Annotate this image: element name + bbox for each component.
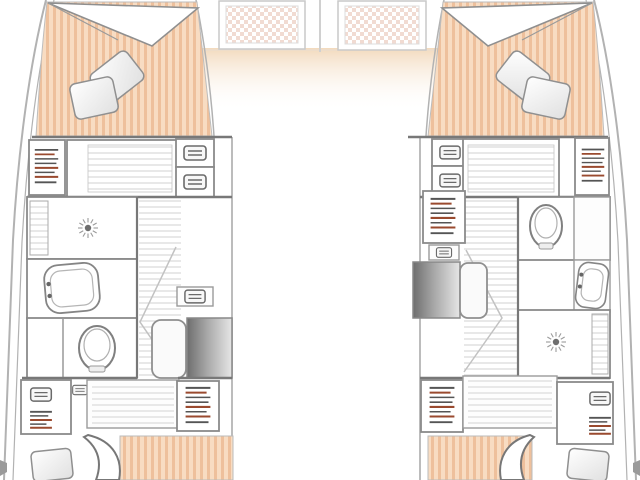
floor-plan-svg xyxy=(0,0,640,480)
drawer-glyph xyxy=(590,392,610,405)
drawer-glyph xyxy=(440,174,460,187)
stbd-companionway xyxy=(413,191,518,377)
stbd-steps xyxy=(413,262,460,318)
shower-shelf xyxy=(30,201,48,255)
port-aft-lockers xyxy=(21,380,219,434)
port-aft-bolster xyxy=(84,435,120,480)
forward-hatch-starboard xyxy=(338,1,426,50)
port-seat xyxy=(152,320,186,378)
stbd-aft-pillow xyxy=(567,448,610,480)
port-hull xyxy=(0,0,233,480)
drawer-glyph xyxy=(73,385,88,394)
slat-lines xyxy=(468,145,554,192)
port-bathroom xyxy=(27,197,137,378)
drawer-glyph xyxy=(436,248,451,258)
drawer-glyph xyxy=(31,388,52,401)
drawer-glyph xyxy=(184,175,206,189)
stbd-seat xyxy=(460,263,487,318)
slat-lines xyxy=(92,384,174,424)
stbd-toilet xyxy=(530,205,562,249)
starboard-hull xyxy=(408,0,640,480)
port-aft-berth xyxy=(120,436,233,480)
port-washbasin xyxy=(43,262,101,315)
forward-hatch-port xyxy=(219,1,305,49)
port-forward-cabin xyxy=(36,2,212,136)
drawer-glyph xyxy=(185,290,205,303)
drawer-glyph xyxy=(184,146,206,160)
bridgedeck xyxy=(202,0,438,112)
port-steps xyxy=(187,318,232,378)
stbd-bathroom xyxy=(518,197,610,378)
port-aft-cabin xyxy=(31,435,233,480)
port-aft-pillow xyxy=(31,448,74,480)
slat-lines xyxy=(88,145,172,192)
floor-plan-canvas xyxy=(0,0,640,480)
shower-shelf xyxy=(592,314,608,374)
port-companionway xyxy=(139,199,232,378)
stbd-counter xyxy=(574,197,610,260)
slat-lines xyxy=(468,380,552,424)
port-hull-fitting xyxy=(0,460,7,476)
deck-glow xyxy=(202,48,438,112)
port-toilet xyxy=(79,326,115,372)
port-lockers-row xyxy=(29,139,214,197)
stbd-forward-cabin xyxy=(428,2,604,136)
drawer-glyph xyxy=(440,146,460,159)
stbd-lockers-row xyxy=(432,138,609,197)
stbd-hull-fitting xyxy=(633,460,640,476)
stbd-aft-lockers xyxy=(421,376,613,444)
stbd-washbasin xyxy=(574,261,609,309)
